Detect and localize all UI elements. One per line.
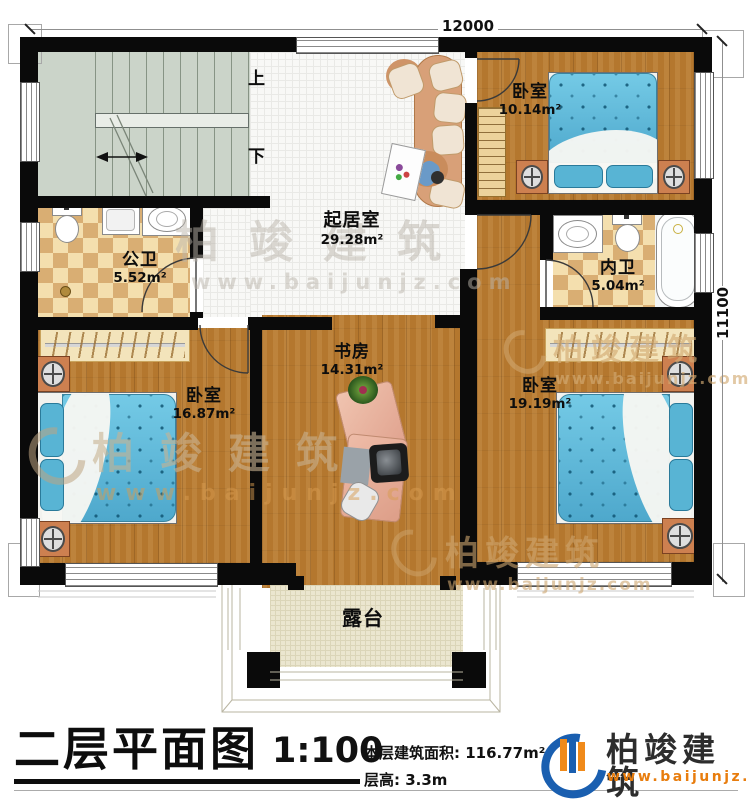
wall-bedroomtop-bottom — [465, 200, 712, 215]
room-label-terrace: 露台 — [303, 606, 423, 630]
room-name: 书房 — [292, 342, 412, 362]
pillow — [606, 165, 653, 188]
room-name: 卧室 — [144, 386, 264, 406]
sink-basin-icon-2 — [566, 226, 589, 242]
brand-name: 柏竣建筑 — [606, 733, 750, 799]
living-room-floor-lower — [203, 208, 250, 317]
hallway-floor — [477, 215, 540, 322]
room-area: 10.14m² — [470, 102, 590, 118]
window-bottom-left — [65, 563, 218, 587]
wall-study-top — [248, 317, 332, 330]
sink-basin-icon — [156, 211, 178, 227]
floor-height-value: 3.3m — [405, 771, 447, 789]
room-name: 卧室 — [480, 376, 600, 396]
nightstand-lamp-icon — [667, 523, 693, 549]
dimension-top-label: 12000 — [438, 17, 498, 35]
bathtub-drain-icon — [673, 224, 683, 234]
wall-bedroomtop-stub — [465, 37, 477, 58]
brand-url: www.baijunjz.com — [607, 770, 750, 784]
hangers-icon — [550, 332, 692, 358]
wall-publicbath-bottom — [20, 317, 198, 330]
window-left-stair — [20, 82, 40, 162]
room-label-bedroom-top: 卧室 10.14m² — [470, 82, 590, 119]
terrace-pillar-right — [452, 652, 486, 688]
nightstand-lamp-icon — [41, 361, 65, 387]
nightstand-lamp-icon — [41, 526, 65, 552]
room-area: 29.28m² — [292, 232, 412, 248]
room-name: 露台 — [303, 606, 423, 630]
nightstand-lamp-icon — [667, 361, 693, 387]
floor-area-value: 116.77m² — [465, 744, 545, 762]
room-name: 起居室 — [292, 210, 412, 232]
floor-area-text: 本层建筑面积: 116.77m² — [364, 744, 545, 762]
window-left-bath — [20, 222, 40, 272]
title-underline-thick — [14, 779, 360, 784]
wall-left-3 — [20, 270, 38, 518]
stair-up-label: 上 — [248, 64, 265, 89]
brand-logo-icon — [540, 727, 600, 793]
nightstand-lamp-icon — [663, 165, 685, 189]
wall-left-1 — [20, 37, 38, 82]
wall-right-1 — [694, 37, 712, 72]
toilet-icon — [55, 215, 79, 243]
window-top — [296, 37, 439, 54]
person-head — [431, 171, 444, 184]
wall-left-2 — [20, 160, 38, 222]
wall-bottom-4 — [670, 562, 712, 585]
toilet-button-icon-2 — [624, 215, 629, 219]
sofa-cushion — [433, 91, 468, 124]
wall-privatebath-left — [540, 215, 553, 260]
window-left-bedroom — [20, 518, 40, 567]
wall-right-3 — [694, 291, 712, 585]
terrace-pillar-left — [247, 652, 280, 688]
hangers-icon — [45, 332, 185, 358]
floor-plan-sheet: 12000 11100 上 下 卧室 10.14m² 起居室 29.28m² 公… — [0, 0, 750, 803]
room-name: 公卫 — [80, 250, 200, 270]
wall-top-left — [20, 37, 296, 52]
wardrobe-shelf — [478, 107, 506, 197]
pillow — [40, 459, 64, 511]
pillow — [669, 459, 693, 511]
desk-pad — [340, 447, 372, 486]
nightstand — [662, 356, 698, 392]
floor-height-label: 层高: — [364, 771, 400, 789]
room-label-study: 书房 14.31m² — [292, 342, 412, 379]
room-label-public-bath: 公卫 5.52m² — [80, 250, 200, 287]
stair-down-label: 下 — [248, 142, 265, 167]
wall-divider-left — [250, 330, 262, 585]
dimension-line-top — [30, 29, 702, 30]
floor-height-text: 层高: 3.3m — [364, 771, 447, 789]
terrace-jamb-right — [440, 576, 456, 590]
terrace-jamb-left — [288, 576, 304, 590]
wall-top-right — [437, 37, 712, 52]
floor-area-label: 本层建筑面积: — [364, 744, 460, 762]
wall-center-vertical — [460, 269, 477, 585]
wall-privatebath-bottom — [540, 307, 712, 320]
window-right-bath — [694, 233, 714, 293]
room-name: 卧室 — [470, 82, 590, 102]
toilet-icon-2 — [615, 224, 640, 252]
room-area: 5.52m² — [80, 270, 200, 286]
room-label-bedroom-right: 卧室 19.19m² — [480, 376, 600, 413]
floor-drain-icon — [60, 286, 71, 297]
dimension-right-label: 11100 — [714, 286, 732, 340]
room-label-living: 起居室 29.28m² — [292, 210, 412, 248]
nightstand-lamp-icon — [521, 165, 543, 189]
window-right-bedroom — [694, 72, 714, 179]
room-area: 14.31m² — [292, 362, 412, 378]
plant-icon — [348, 376, 378, 404]
nightstand — [658, 160, 690, 194]
window-bottom-right — [517, 562, 672, 587]
desk — [330, 378, 420, 523]
stair-landing-rail — [95, 113, 249, 128]
room-label-private-bath: 内卫 5.04m² — [558, 258, 678, 295]
room-area: 16.87m² — [144, 406, 264, 422]
wall-stair-bottom — [20, 196, 270, 208]
nightstand — [36, 356, 70, 392]
monitor-icon — [369, 443, 410, 484]
sofa-cushion — [431, 124, 465, 156]
room-area: 19.19m² — [480, 396, 600, 412]
pillow — [669, 403, 693, 457]
sheet-title: 二层平面图 — [14, 726, 259, 772]
corner-bracket — [713, 543, 745, 597]
room-label-bedroom-left: 卧室 16.87m² — [144, 386, 264, 423]
room-area: 5.04m² — [558, 278, 678, 294]
pillow — [40, 403, 64, 457]
pillow — [554, 165, 603, 188]
nightstand — [662, 518, 698, 554]
room-name: 内卫 — [558, 258, 678, 278]
nightstand — [36, 521, 70, 557]
washer-drum-icon — [106, 209, 135, 231]
wall-publicbath-right-a — [190, 196, 203, 258]
nightstand — [516, 160, 548, 194]
